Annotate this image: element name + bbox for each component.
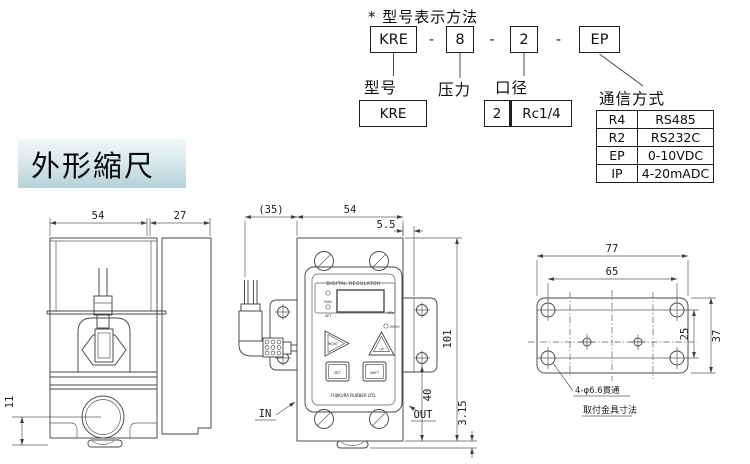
table-row: IP 4-20mADC [597, 165, 714, 183]
dim-ref-depth: (35) [258, 204, 283, 216]
comm-name: 4-20mADC [638, 165, 714, 183]
hole-note: 4-φ6.6貫通 [575, 385, 620, 396]
field-label-model: 型号 [364, 76, 397, 98]
code-box-model: KRE [370, 26, 417, 53]
dim-front-width: 54 [344, 204, 357, 216]
right-button-label: RIGHT [328, 342, 338, 346]
cable-connector [239, 280, 297, 357]
bracket-drawing: 77 65 37 25 4-φ6.6貫通 取付金具寸法 [520, 230, 750, 440]
comm-code: IP [597, 165, 638, 183]
dim-hole-span-v: 25 [679, 328, 691, 341]
unit-label: MPa [387, 311, 394, 315]
model-designation-title: * 型号表示方法 [368, 6, 478, 27]
comm-name: 0-10VDC [638, 147, 714, 165]
comm-code: R4 [597, 111, 638, 129]
comm-name: RS232C [638, 129, 714, 147]
field-label-pressure: 压力 [438, 78, 471, 100]
model-value-box: KRE [359, 100, 427, 127]
bracket-caption: 取付金具寸法 [583, 404, 637, 416]
up-button-label: UP [379, 348, 383, 352]
in-label: IN [259, 408, 272, 420]
dim-bracket-height: 37 [711, 330, 723, 343]
dim-side-port-height: 11 [4, 396, 16, 409]
table-row: EP 0-10VDC [597, 147, 714, 165]
run-led-label: RUN [324, 300, 332, 304]
front-view-drawing: DIGITAL REGULATOR RUN SET MPa ZERO RIGHT… [225, 195, 480, 464]
dim-offset: 5.5 [377, 219, 396, 231]
set-led-label: SET [325, 314, 332, 318]
comm-options-table: R4 RS485 R2 RS232C EP 0-10VDC IP 4-20mAD… [596, 110, 714, 183]
code-separator: - [419, 26, 444, 53]
dim-tab: 3.15 [457, 400, 469, 425]
front-view-right-bracket [403, 298, 437, 372]
zero-label: ZERO [390, 325, 400, 329]
brand-label: FUJIKURA RUBBER LTD. [331, 393, 377, 398]
dim-height: 101 [442, 330, 454, 349]
comm-code: R2 [597, 129, 638, 147]
bracket-outline [528, 290, 697, 381]
code-box-pressure: 8 [446, 26, 474, 53]
shift-button-label: SHIFT [370, 371, 380, 375]
section-heading: 外形縮尺 [18, 139, 186, 188]
comm-code: EP [597, 147, 638, 165]
side-view-body [47, 238, 211, 447]
dim-bracket-width: 77 [606, 243, 619, 255]
display-window [337, 290, 384, 312]
table-row: R4 RS485 [597, 111, 714, 129]
set-button-label: SET [334, 371, 341, 375]
code-separator: - [541, 26, 576, 53]
front-view-left-bracket [270, 300, 297, 370]
side-view-drawing: 54 27 11 [0, 195, 225, 464]
table-row: R2 RS232C [597, 129, 714, 147]
dim-out-height: 40 [422, 389, 434, 402]
dim-side-depth: 27 [174, 210, 187, 222]
bore-size-cell: Rc1/4 [510, 100, 572, 127]
bore-code-cell: 2 [484, 100, 510, 127]
field-label-comm: 通信方式 [599, 87, 665, 109]
field-label-bore: 口径 [495, 76, 528, 98]
code-box-comm: EP [579, 26, 620, 53]
code-box-bore: 2 [510, 26, 538, 53]
bracket-dimensions: 77 65 37 25 4-φ6.6貫通 取付金具寸法 [537, 243, 723, 416]
code-separator: - [477, 26, 507, 53]
out-label: OUT [414, 409, 434, 421]
comm-name: RS485 [638, 111, 714, 129]
dim-side-width: 54 [92, 210, 105, 222]
dim-hole-span: 65 [606, 266, 619, 278]
bore-value-box: 2 Rc1/4 [484, 100, 572, 127]
panel-title: DIGITAL REGULATOR [326, 281, 381, 287]
